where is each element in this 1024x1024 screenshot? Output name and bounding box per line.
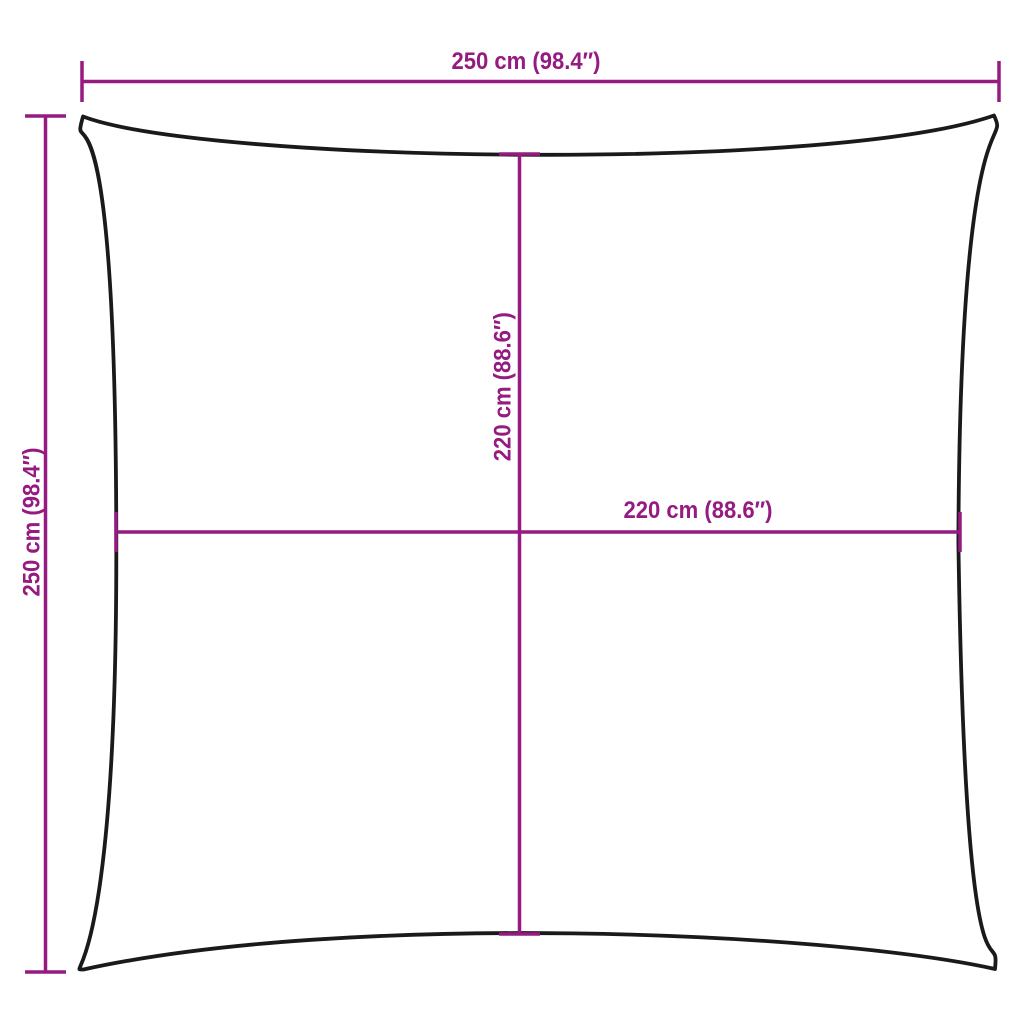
svg-text:220 cm (88.6″): 220 cm (88.6″)	[624, 497, 773, 524]
svg-text:220 cm (88.6″): 220 cm (88.6″)	[490, 312, 517, 461]
svg-text:250 cm (98.4″): 250 cm (98.4″)	[19, 448, 46, 597]
svg-text:250 cm (98.4″): 250 cm (98.4″)	[452, 48, 601, 75]
